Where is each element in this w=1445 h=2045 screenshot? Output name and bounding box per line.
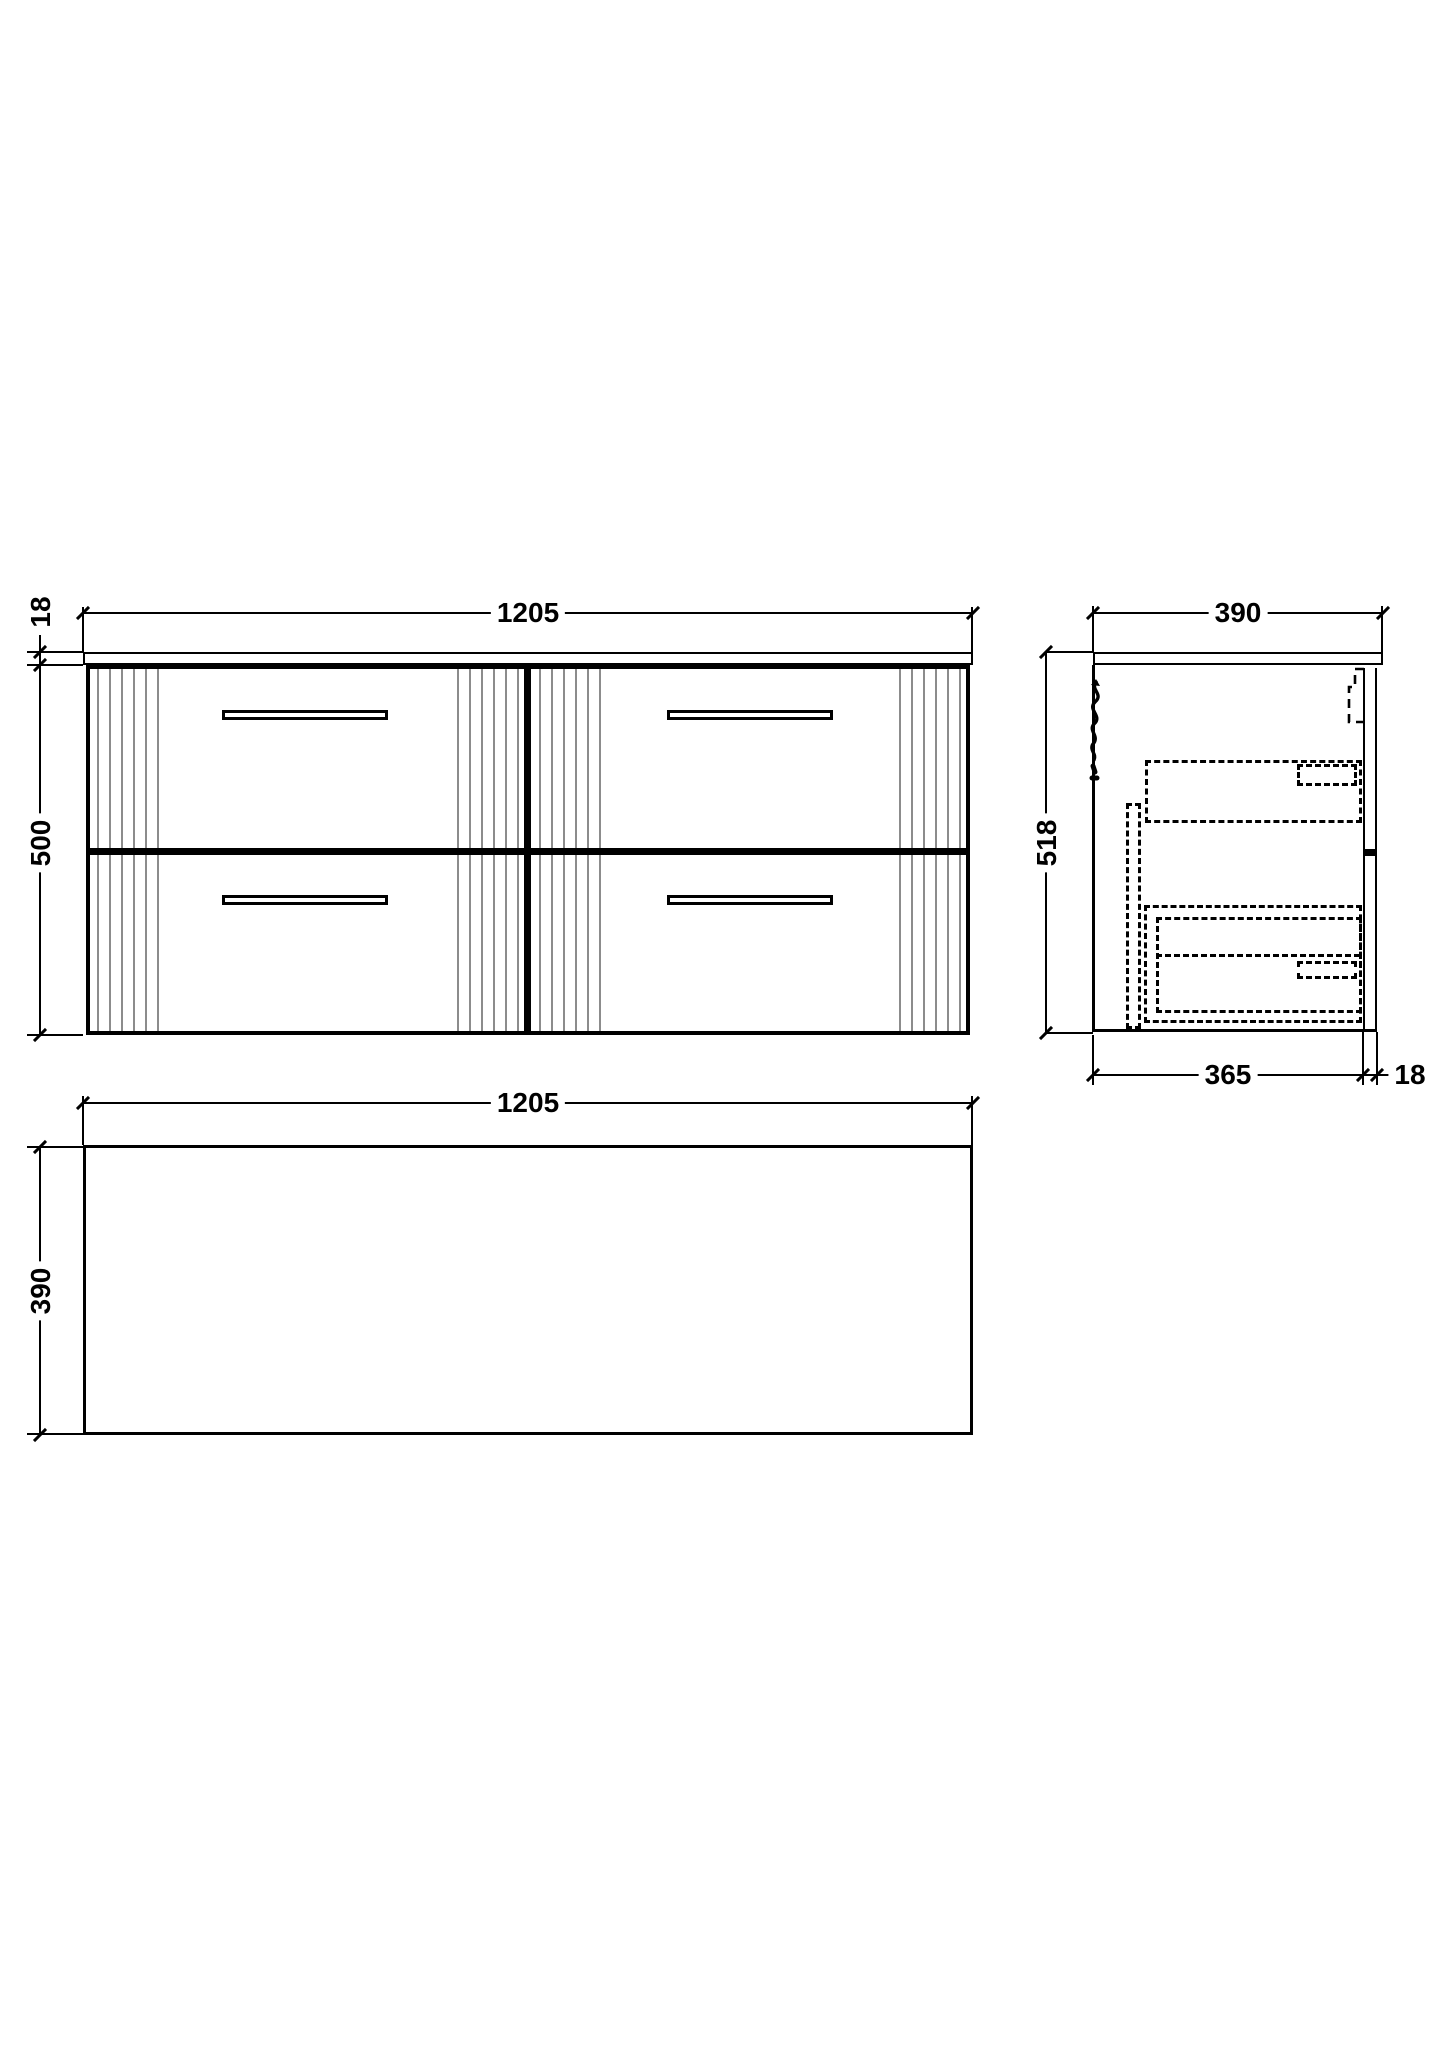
technical-drawing-vanity-unit: 1205 18 500 [0, 0, 1445, 2045]
dimension-label-plan-width: 1205 [491, 1087, 565, 1119]
dimension-label-plan-depth: 390 [25, 1262, 57, 1321]
worktop-plan [83, 1145, 973, 1435]
plan-view: 1205 390 [0, 0, 1445, 2045]
extension-line [27, 1433, 83, 1435]
